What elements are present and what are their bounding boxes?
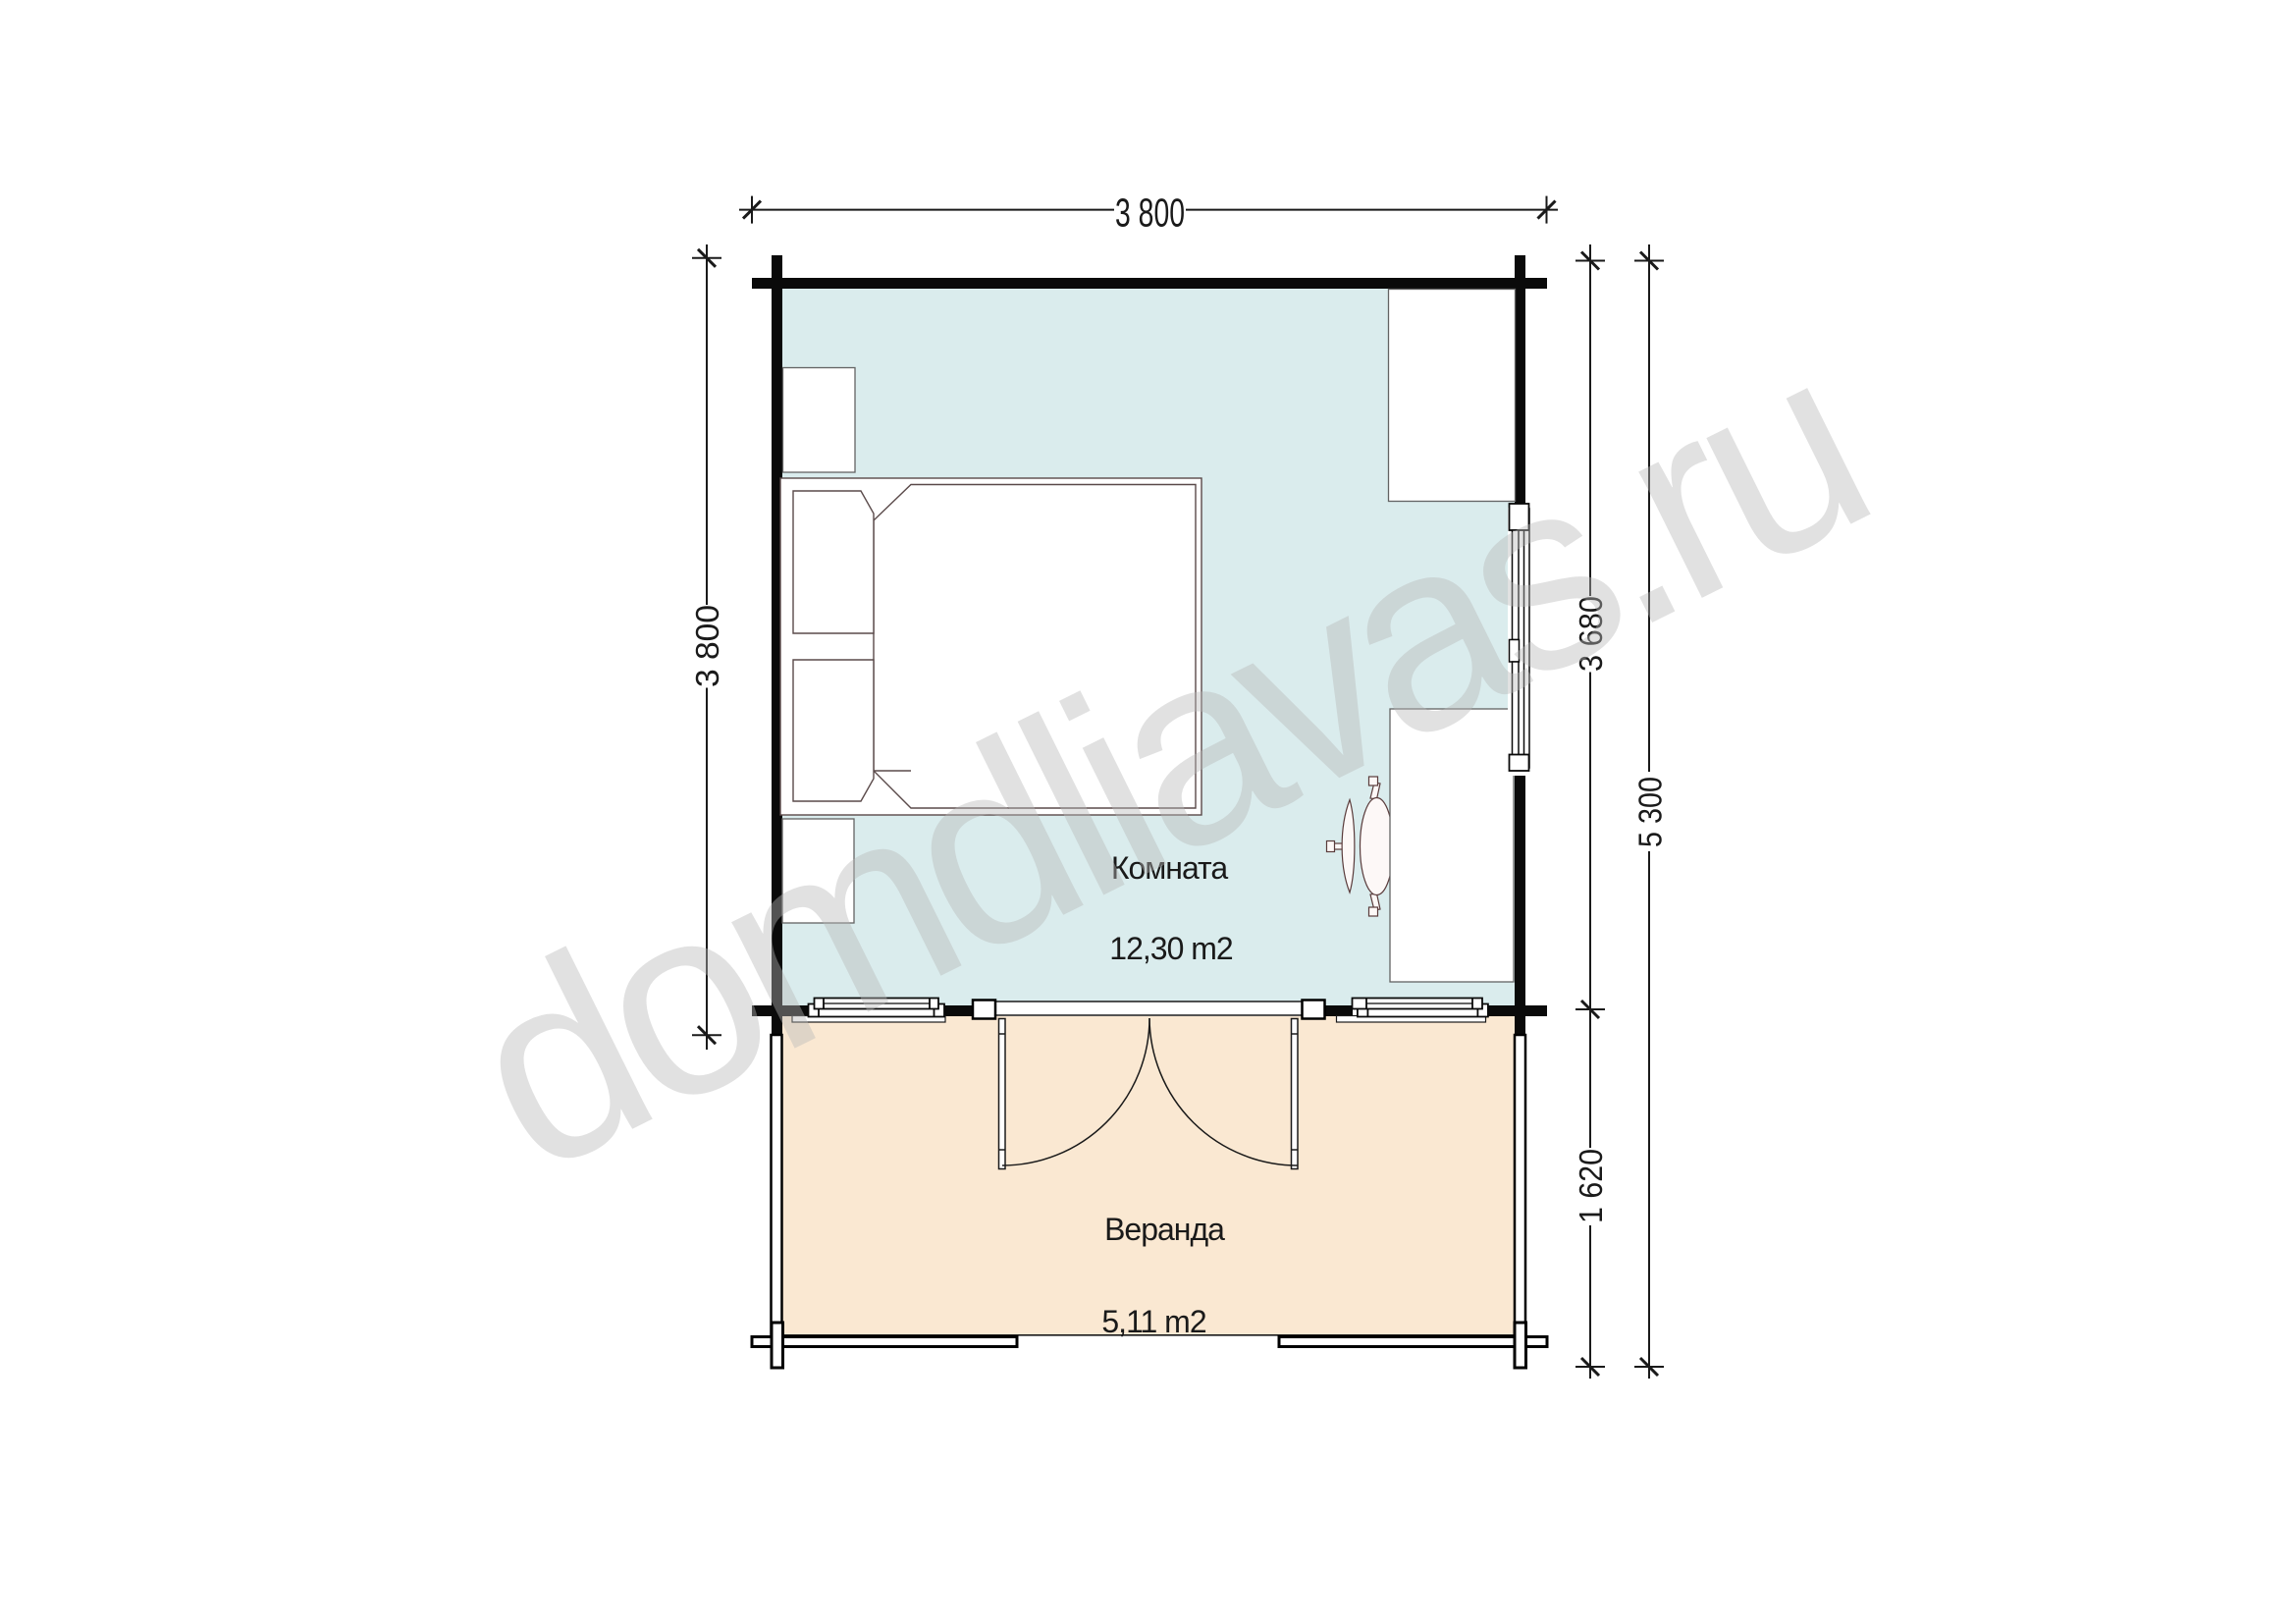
svg-text:3 800: 3 800 <box>1115 190 1185 236</box>
svg-text:Веранда: Веранда <box>1104 1212 1225 1247</box>
svg-text:3 800: 3 800 <box>689 605 725 687</box>
svg-text:1 620: 1 620 <box>1573 1149 1609 1223</box>
svg-text:5 300: 5 300 <box>1632 777 1669 847</box>
svg-text:5,11 m2: 5,11 m2 <box>1101 1304 1205 1339</box>
